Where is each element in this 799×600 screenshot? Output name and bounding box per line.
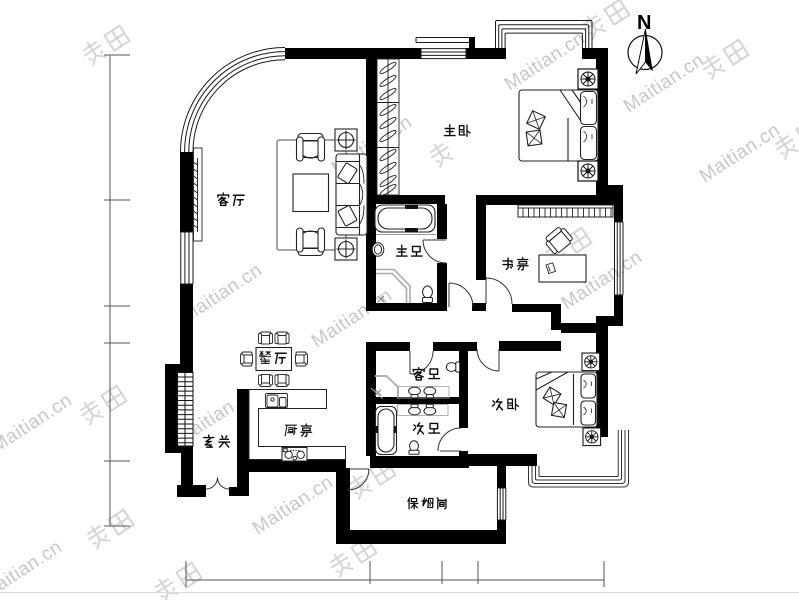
svg-text:N: N: [637, 12, 651, 34]
